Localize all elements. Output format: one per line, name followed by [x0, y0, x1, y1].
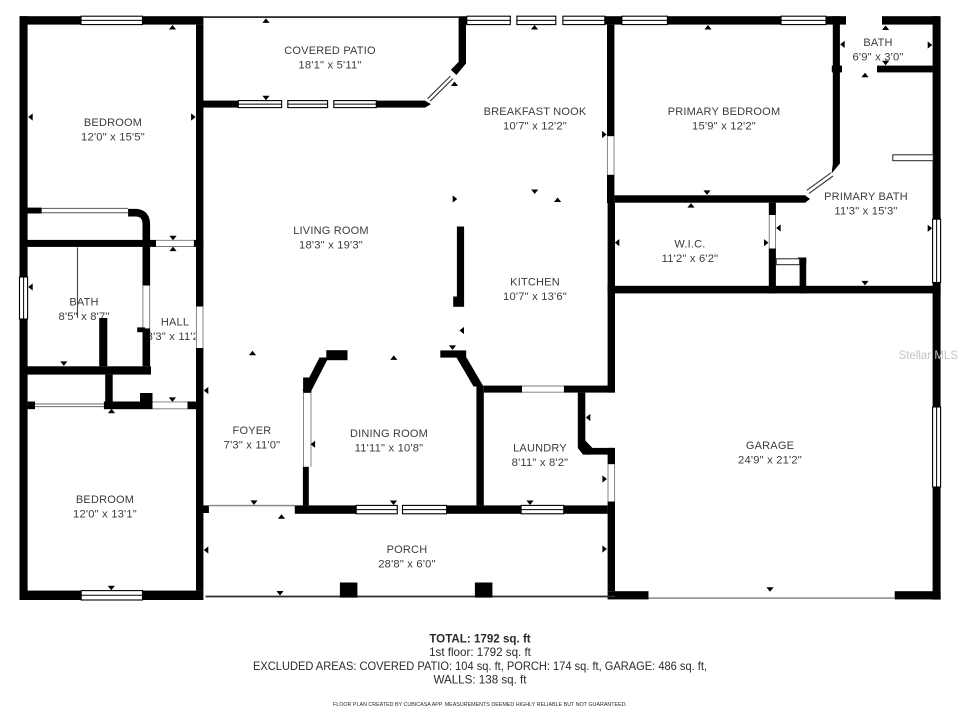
- svg-text:8'3" x 11'2": 8'3" x 11'2": [147, 331, 204, 343]
- svg-text:18'3" x 19'3": 18'3" x 19'3": [299, 240, 363, 252]
- svg-text:DINING ROOM: DINING ROOM: [350, 428, 428, 440]
- svg-text:BATH: BATH: [69, 297, 98, 309]
- svg-text:TOTAL: 1792 sq. ft: TOTAL: 1792 sq. ft: [429, 632, 530, 645]
- svg-text:W.I.C.: W.I.C.: [674, 239, 705, 251]
- svg-text:1st floor: 1792 sq. ft: 1st floor: 1792 sq. ft: [429, 646, 532, 659]
- svg-text:10'7" x 13'6": 10'7" x 13'6": [503, 291, 567, 303]
- svg-text:FLOOR PLAN CREATED BY CUBICASA: FLOOR PLAN CREATED BY CUBICASA APP. MEAS…: [333, 702, 627, 708]
- svg-text:PORCH: PORCH: [387, 544, 428, 556]
- svg-text:12'0" x 15'5": 12'0" x 15'5": [81, 132, 145, 144]
- svg-text:PRIMARY BEDROOM: PRIMARY BEDROOM: [668, 106, 781, 118]
- svg-text:BEDROOM: BEDROOM: [76, 494, 134, 506]
- svg-text:PRIMARY BATH: PRIMARY BATH: [824, 191, 908, 203]
- svg-text:Stellar MLS: Stellar MLS: [899, 350, 959, 362]
- svg-text:HALL: HALL: [161, 317, 189, 329]
- svg-text:8'11" x 8'2": 8'11" x 8'2": [512, 457, 569, 469]
- svg-text:24'9" x 21'2": 24'9" x 21'2": [738, 455, 802, 467]
- svg-text:WALLS: 138 sq. ft: WALLS: 138 sq. ft: [433, 674, 527, 687]
- svg-text:18'1" x 5'11": 18'1" x 5'11": [298, 60, 361, 72]
- svg-text:BEDROOM: BEDROOM: [84, 117, 142, 129]
- svg-text:BREAKFAST NOOK: BREAKFAST NOOK: [484, 106, 587, 118]
- svg-text:28'8" x 6'0": 28'8" x 6'0": [378, 559, 436, 571]
- svg-text:12'0" x 13'1": 12'0" x 13'1": [73, 509, 137, 521]
- svg-text:EXCLUDED AREAS: COVERED PATIO:: EXCLUDED AREAS: COVERED PATIO: 104 sq. f…: [253, 660, 707, 673]
- svg-text:GARAGE: GARAGE: [746, 440, 794, 452]
- svg-text:FOYER: FOYER: [233, 425, 272, 437]
- svg-text:11'11" x 10'8": 11'11" x 10'8": [355, 443, 424, 455]
- svg-text:LAUNDRY: LAUNDRY: [513, 443, 567, 455]
- svg-text:10'7" x 12'2": 10'7" x 12'2": [503, 121, 567, 133]
- svg-text:15'9" x 12'2": 15'9" x 12'2": [692, 121, 756, 133]
- svg-text:11'2" x 6'2": 11'2" x 6'2": [662, 253, 719, 265]
- svg-text:11'3" x 15'3": 11'3" x 15'3": [834, 206, 897, 218]
- svg-text:6'9" x 3'0": 6'9" x 3'0": [852, 52, 903, 64]
- svg-text:BATH: BATH: [863, 37, 892, 49]
- svg-text:KITCHEN: KITCHEN: [510, 277, 560, 289]
- svg-text:COVERED PATIO: COVERED PATIO: [284, 45, 376, 57]
- svg-text:7'3" x 11'0": 7'3" x 11'0": [224, 440, 281, 452]
- svg-text:LIVING ROOM: LIVING ROOM: [293, 225, 369, 237]
